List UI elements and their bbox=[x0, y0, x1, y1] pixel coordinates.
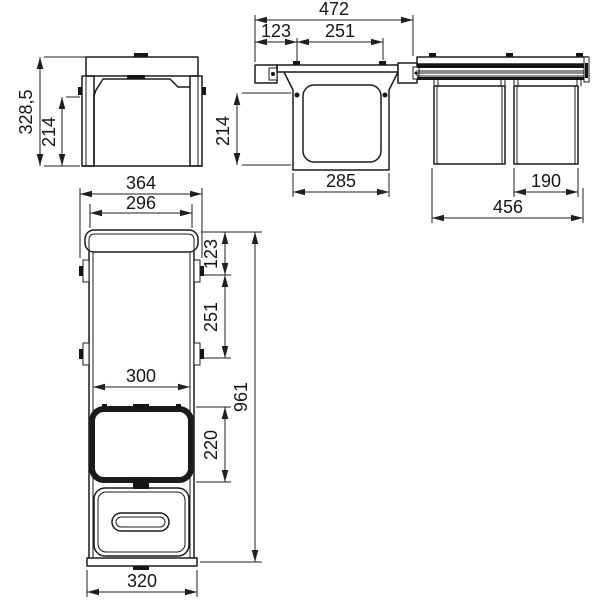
dim-plan-outer-width: 364 bbox=[126, 173, 156, 193]
waste-bin-technical-drawing: 328,5 214 472 bbox=[0, 0, 600, 600]
side-section-dimensions: 472 123 251 214 285 bbox=[213, 0, 413, 197]
dim-side-front-offset: 123 bbox=[261, 21, 291, 41]
side-section-outline bbox=[255, 61, 419, 170]
rail-assembly bbox=[417, 53, 589, 86]
dim-bins-total-width: 456 bbox=[493, 197, 523, 217]
dim-plan-bottom-width: 320 bbox=[127, 571, 157, 591]
plan-outline bbox=[79, 230, 204, 570]
dim-plan-total-depth: 961 bbox=[231, 382, 251, 412]
bins-side-view: 190 456 bbox=[417, 53, 589, 223]
dim-plan-opening-width: 300 bbox=[126, 366, 156, 386]
dim-front-total-height: 328,5 bbox=[16, 89, 36, 134]
technical-drawing-page: 328,5 214 472 bbox=[0, 0, 600, 600]
dim-plan-hole-spacing: 251 bbox=[201, 302, 221, 332]
dim-plan-opening-depth: 220 bbox=[201, 430, 221, 460]
dim-plan-inner-width: 296 bbox=[126, 193, 156, 213]
side-section-view: 472 123 251 214 285 bbox=[213, 0, 419, 197]
bins-side-dimensions: 190 456 bbox=[432, 168, 583, 223]
dim-bin-width: 190 bbox=[531, 171, 561, 191]
dim-plan-front-offset: 123 bbox=[201, 239, 221, 269]
dim-front-inner-height: 214 bbox=[39, 117, 59, 147]
dim-side-hole-spacing: 251 bbox=[325, 21, 355, 41]
dim-side-inner-height: 214 bbox=[213, 116, 233, 146]
plan-dimensions: 364 296 123 251 300 220 bbox=[80, 173, 262, 597]
front-view-dimensions: 328,5 214 bbox=[16, 57, 86, 166]
front-view: 328,5 214 bbox=[16, 53, 206, 166]
dim-side-total-depth: 472 bbox=[319, 0, 349, 19]
dim-side-frame-depth: 285 bbox=[326, 171, 356, 191]
front-view-outline bbox=[78, 53, 206, 166]
waste-bins bbox=[434, 86, 578, 164]
plan-view: 364 296 123 251 300 220 bbox=[79, 173, 262, 597]
